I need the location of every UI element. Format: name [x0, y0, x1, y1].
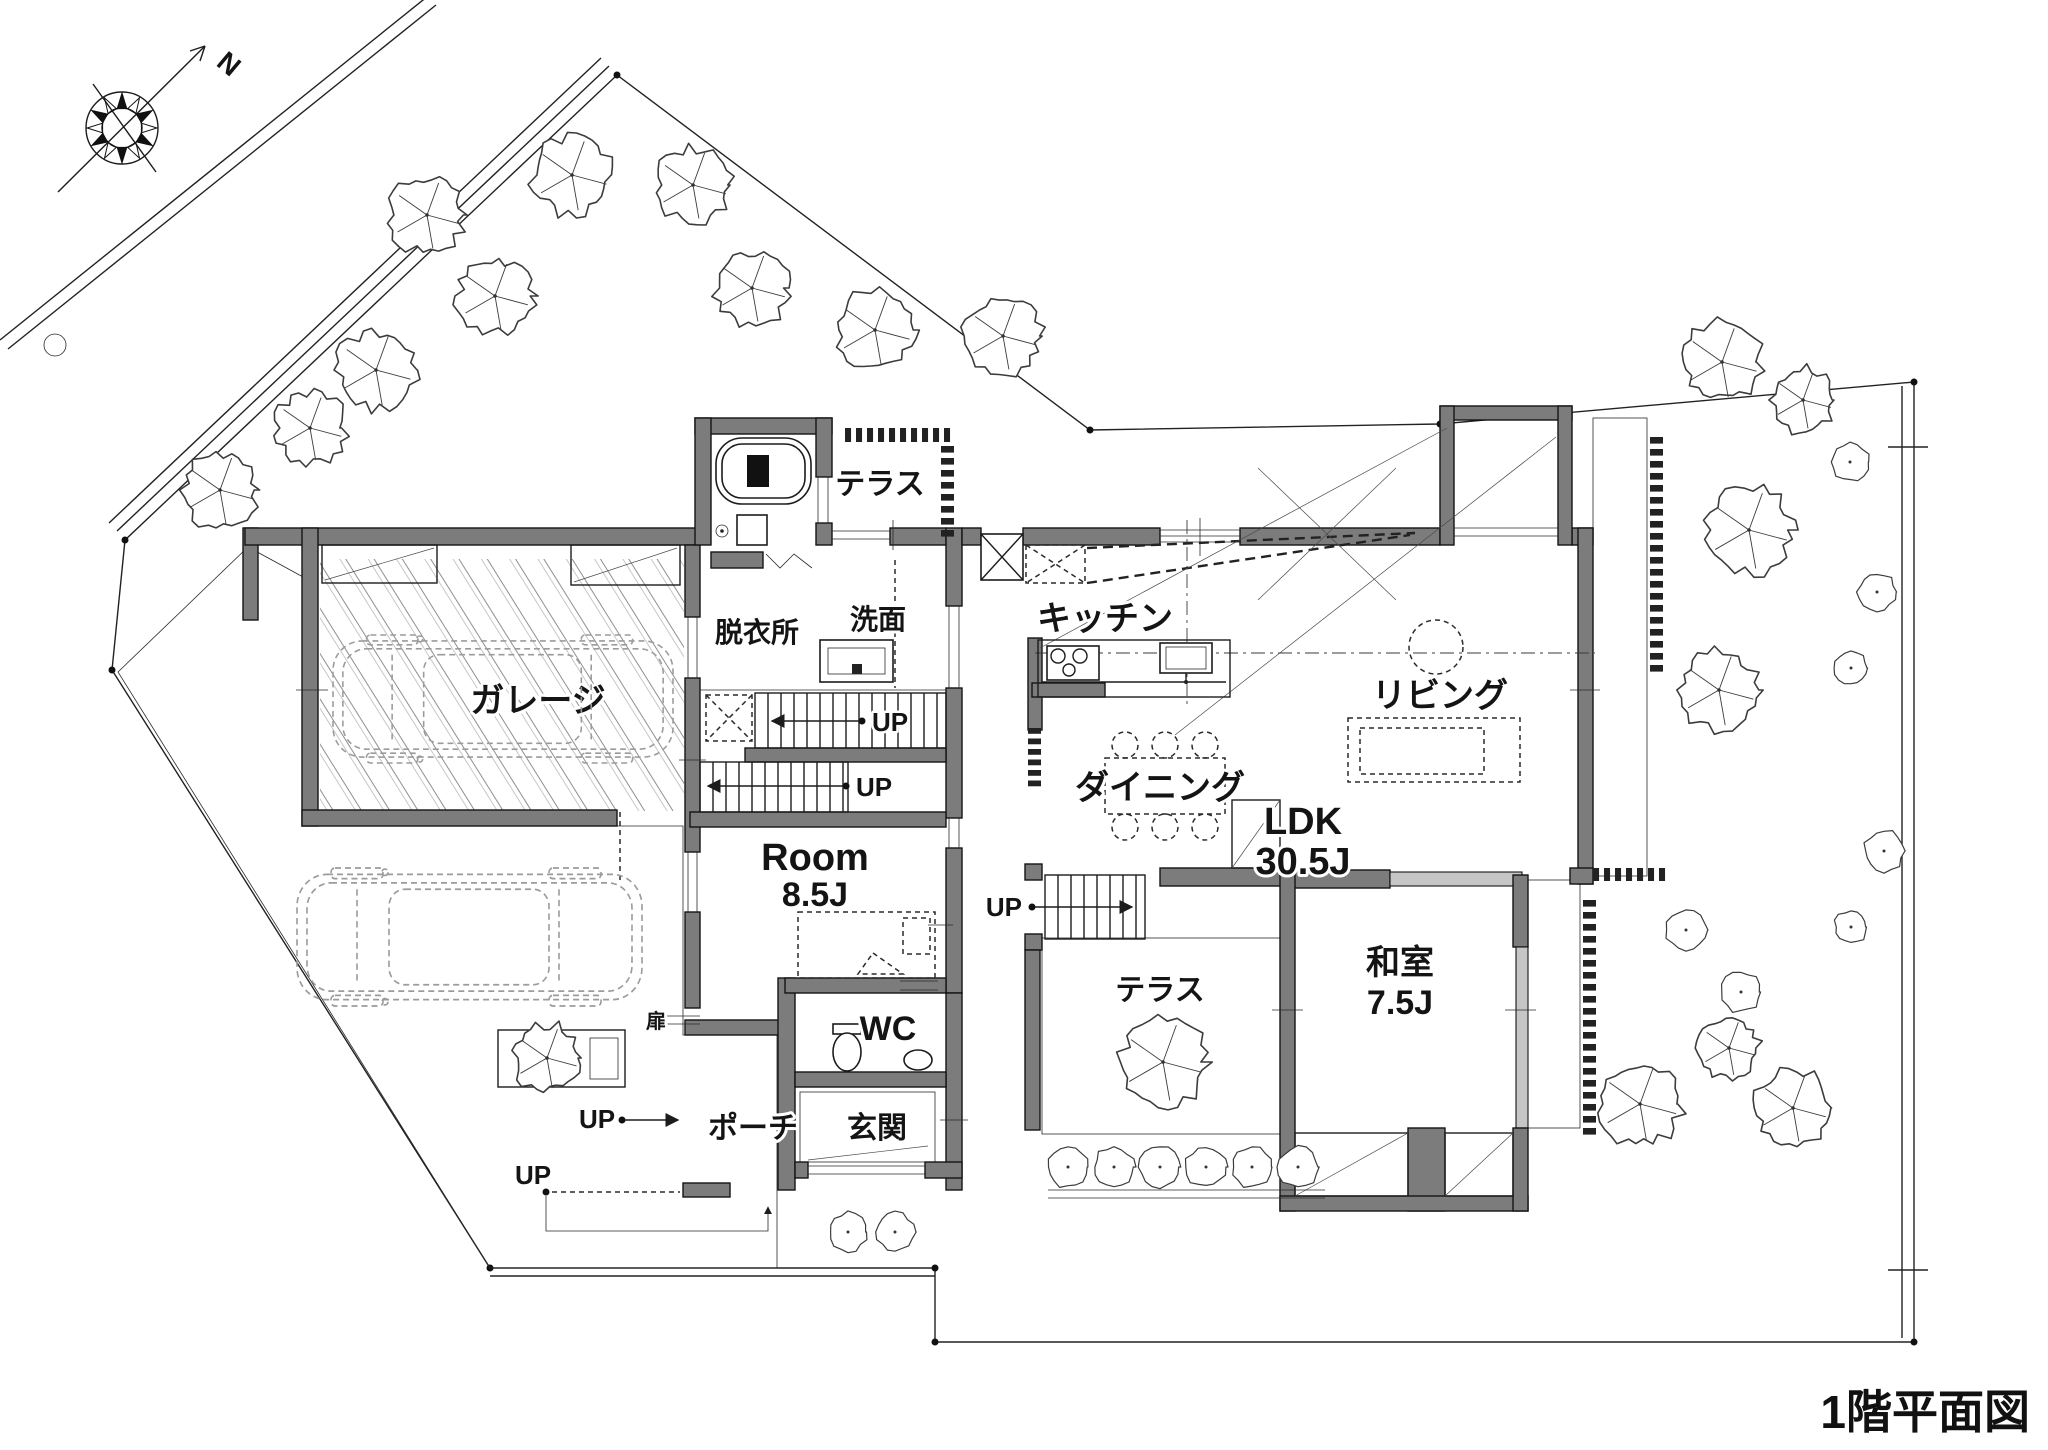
closet-dashed	[1026, 545, 1085, 583]
tree-icon	[656, 143, 734, 225]
tree-icon	[961, 299, 1045, 377]
fixtures	[498, 438, 1520, 1198]
washitsu-label: 和室	[1366, 943, 1434, 982]
up-label-3: UP	[986, 892, 1022, 922]
terrace-top-label: テラス	[835, 468, 924, 501]
tree-icon	[1695, 1018, 1762, 1081]
garage-label: ガレージ	[470, 682, 605, 720]
wc-label: WC	[860, 1010, 917, 1048]
survey-point	[44, 334, 66, 356]
tree-icon	[1598, 1066, 1686, 1144]
dining-label: ダイニング	[1075, 769, 1245, 807]
ldk-label: LDK	[1264, 801, 1343, 843]
tree-icon	[837, 287, 920, 367]
shrub-icon	[1095, 1147, 1136, 1187]
tree-icon	[387, 177, 467, 253]
room-label: Room	[761, 837, 869, 879]
tree-icon	[528, 132, 612, 218]
shrub-icon	[1857, 575, 1897, 612]
shrub-icon	[1186, 1148, 1229, 1186]
bath-faucet	[747, 455, 769, 487]
kitchen-sink	[1160, 643, 1212, 673]
washroom-label: 洗面	[850, 604, 906, 635]
section-lines	[1035, 428, 1595, 735]
tree-icon	[334, 328, 420, 414]
tree-icon	[1704, 484, 1799, 577]
washstand	[820, 640, 893, 682]
tree-icon	[1769, 364, 1834, 435]
ldk-size-label: 30.5J	[1255, 841, 1350, 883]
shrub-icon	[1666, 910, 1708, 951]
shrub-icon	[1864, 831, 1905, 874]
shrub-icon	[1722, 972, 1761, 1012]
terrace-garden-label: テラス	[1115, 974, 1204, 1007]
tree-icon	[1677, 646, 1763, 734]
vent-box	[981, 534, 1023, 580]
shrub-icon	[1834, 651, 1868, 684]
laundry-pan	[706, 695, 752, 741]
tree-icon	[180, 452, 260, 528]
shrub-icon	[1048, 1147, 1088, 1188]
tree-icon	[512, 1021, 581, 1092]
room-size-label: 8.5J	[782, 876, 848, 914]
road	[0, 0, 436, 349]
tree-icon	[1682, 317, 1765, 398]
dressing-label: 脱衣所	[715, 616, 799, 648]
living-label: リビング	[1372, 677, 1508, 715]
tree-icon	[1117, 1015, 1213, 1110]
tree-icon	[274, 389, 350, 468]
door-label: 扉	[646, 1009, 666, 1033]
driveway-hatch	[118, 547, 777, 1268]
car-icon	[297, 868, 642, 1006]
compass-icon: N	[58, 45, 247, 192]
floor-plan-svg: N	[0, 0, 2048, 1450]
kitchen-label: キッチン	[1037, 600, 1173, 638]
washitsu-closets	[1295, 1133, 1513, 1196]
shrub-icon	[1831, 442, 1869, 481]
tree-icon	[453, 259, 538, 336]
bed	[798, 912, 935, 978]
up-label-1: UP	[872, 707, 908, 737]
tree-icon	[1753, 1068, 1831, 1147]
page-title: 1階平面図	[1820, 1386, 2030, 1438]
east-deck	[1593, 418, 1647, 876]
up-label-2: UP	[856, 772, 892, 802]
up-label-5: UP	[515, 1160, 551, 1190]
tree-icon	[712, 252, 791, 327]
up-label-4: UP	[579, 1104, 615, 1134]
entrance-label: 玄関	[847, 1111, 907, 1145]
north-label: N	[211, 45, 246, 82]
shrub-icon	[876, 1211, 917, 1251]
bath-stool	[737, 515, 767, 545]
wc-basin	[904, 1050, 932, 1070]
shrub-icon	[831, 1211, 867, 1253]
shrub-icon	[1834, 911, 1866, 943]
engawa-deck	[1528, 880, 1580, 1128]
floor-plan-page: N	[0, 0, 2048, 1450]
shrub-icon	[1138, 1147, 1181, 1189]
porch-label: ポーチ	[708, 1112, 798, 1145]
shrub-icon	[1233, 1147, 1272, 1188]
washitsu-size-label: 7.5J	[1367, 984, 1433, 1022]
